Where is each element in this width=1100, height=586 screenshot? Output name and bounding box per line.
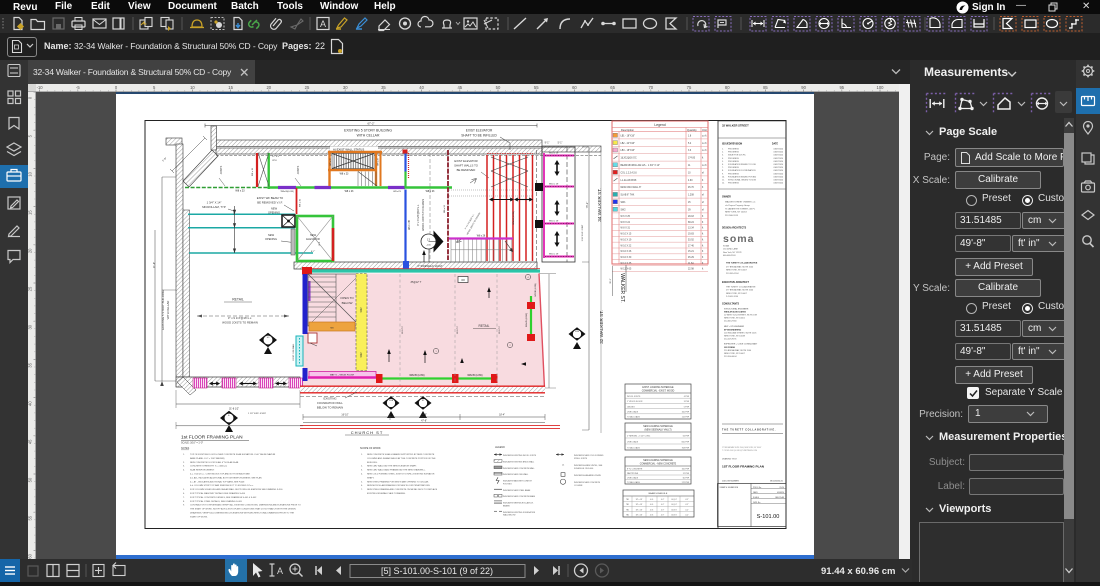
svg-text:EXECUTIVE ARCHITECT: EXECUTIVE ARCHITECT (722, 281, 749, 284)
svg-text:FOR TYPICAL MASONRY DETAILS SE: FOR TYPICAL MASONRY DETAILS SEE DRAWING … (190, 492, 246, 495)
svg-text:COL 1,2,3,4,5,6: COL 1,2,3,4,5,6 (621, 172, 638, 174)
svg-text:FOR COLUMN SCHEDULE AND SHEAR: FOR COLUMN SCHEDULE AND SHEAR WALL SECTI… (190, 488, 283, 491)
svg-text:L1: L1 (562, 465, 565, 467)
svg-text:NEW: NEW (271, 207, 278, 211)
svg-text:CPU: CPU (272, 160, 277, 162)
svg-text:COMMERCIAL - NEW CONCRETE: COMMERCIAL - NEW CONCRETE (640, 463, 677, 466)
svg-text:W8 x23: W8 x23 (393, 191, 401, 193)
svg-text:PROJ. No.: PROJ. No. (753, 487, 762, 489)
svg-text:SLAB REINFORCEMENT:: SLAB REINFORCEMENT: (190, 469, 215, 472)
svg-text:M01240534-S1: M01240534-S1 (770, 481, 783, 483)
svg-text:CEILING: CEILING (627, 406, 635, 408)
svg-text:TB1: TB1 (626, 515, 629, 517)
svg-text:MICROLLAM, TYP: MICROLLAM, TYP (202, 205, 226, 209)
svg-text:4 PSF: 4 PSF (684, 396, 690, 398)
svg-text:-5: -5 (76, 85, 80, 90)
svg-text:Quantity: Quantity (687, 128, 697, 132)
svg-text:277 BROADWAY, SUITE 1500: 277 BROADWAY, SUITE 1500 (726, 266, 754, 269)
svg-text:W 10 X 30: W 10 X 30 (621, 257, 632, 259)
svg-text:WOOD (LOW): WOOD (LOW) (535, 283, 537, 296)
svg-text:23-20: 23-20 (779, 487, 784, 489)
svg-text:soma: soma (723, 233, 754, 245)
svg-text:31'-8 1/2": 31'-8 1/2" (229, 408, 239, 411)
svg-text:NEW YORK, NY 10007: NEW YORK, NY 10007 (726, 270, 748, 272)
svg-text:FOR TYPICAL STEEL DETAILS, SEE: FOR TYPICAL STEEL DETAILS, SEE DRAWING S… (190, 500, 243, 503)
svg-text:45.70: 45.70 (688, 187, 694, 189)
svg-text:47'-8": 47'-8" (421, 421, 427, 423)
svg-text:EXISTING: EXISTING (323, 397, 336, 401)
svg-text:75'-2": 75'-2" (585, 202, 589, 209)
svg-text:600 PSF: 600 PSF (682, 442, 690, 444)
svg-text:30: 30 (28, 324, 33, 329)
svg-text:W8 x 31: W8 x 31 (444, 204, 446, 212)
svg-text:35: 35 (28, 362, 33, 367)
svg-text:12.: 12. (722, 183, 725, 185)
svg-text:NEW CMU WALL 8": NEW CMU WALL 8" (621, 186, 642, 189)
svg-text:SW1: SW1 (621, 202, 627, 204)
svg-text:2-2-965-1244: 2-2-965-1244 (726, 296, 739, 298)
svg-text:10.: 10. (722, 176, 725, 178)
svg-text:SOMA: SOMA (723, 245, 730, 248)
svg-text:SHAFT WALLS TO: SHAFT WALLS TO (454, 164, 479, 168)
svg-text:SCALE: SCALE (753, 496, 760, 499)
svg-text:4 #6: 4 #6 (650, 504, 653, 506)
svg-text:Description: Description (621, 128, 635, 132)
svg-text:150 42ND LANE: 150 42ND LANE (723, 248, 738, 251)
svg-text:53.92: 53.92 (688, 239, 694, 241)
svg-text:ISSUED/REVISION: ISSUED/REVISION (722, 144, 743, 146)
svg-text:W8 x 23: W8 x 23 (340, 173, 349, 176)
svg-text:03/07/2024: 03/07/2024 (774, 158, 783, 160)
svg-text:1&J/12@16 OC: 1&J/12@16 OC (621, 158, 637, 160)
svg-text:20: 20 (28, 248, 33, 253)
svg-text:2: 2 (509, 345, 510, 347)
svg-text:03/07/2024: 03/07/2024 (774, 161, 783, 163)
svg-text:112 PSF: 112 PSF (682, 417, 690, 419)
svg-text:03/07/2024: 03/07/2024 (774, 155, 783, 157)
svg-text:40: 40 (28, 401, 33, 406)
svg-text:JOISTS: JOISTS (297, 165, 300, 174)
svg-text:THE TURETT COLLABORATIVE: THE TURETT COLLABORATIVE (726, 262, 758, 265)
svg-text:LB2 - 24"X16": LB2 - 24"X16" (621, 143, 636, 145)
svg-text:6.: 6. (722, 164, 724, 166)
svg-text:OWNER: OWNER (722, 197, 731, 199)
svg-text:cu ft: cu ft (702, 134, 707, 137)
svg-text:cu ft: cu ft (702, 149, 707, 152)
svg-text:6.: 6. (361, 485, 363, 487)
svg-text:3" x 9 1/4"@16"o.c.: 3" x 9 1/4"@16"o.c. (228, 316, 252, 320)
svg-text:1st FLOOR FRAMING PLAN: 1st FLOOR FRAMING PLAN (181, 435, 243, 441)
svg-text:5.: 5. (722, 161, 724, 163)
svg-text:16'-10": 16'-10" (341, 415, 348, 417)
svg-text:1 1/2' EXP. JOINT: 1 1/2' EXP. JOINT (582, 224, 584, 241)
svg-text:MEP + FP ENGINEER: MEP + FP ENGINEER (724, 326, 745, 328)
svg-text:03/07/2024: 03/07/2024 (774, 176, 783, 178)
svg-text:W16X57: W16X57 (402, 325, 404, 334)
svg-text:4.: 4. (722, 158, 724, 160)
svg-text:#4 @ 6": #4 @ 6" (671, 504, 677, 506)
svg-text:EXIST. LOADING SCHEDULE: EXIST. LOADING SCHEDULE (642, 386, 674, 389)
svg-text:35: 35 (381, 85, 386, 90)
svg-text:INDICATES NEW MICROLLAM LVL: INDICATES NEW MICROLLAM LVL (503, 502, 533, 505)
svg-text:18" x 16": 18" x 16" (636, 504, 643, 506)
svg-text:SW2: SW2 (621, 209, 627, 211)
svg-text:20: 20 (266, 85, 271, 90)
svg-text:4 #6: 4 #6 (650, 509, 653, 511)
svg-text:L1-2Lx4X3X3/8: L1-2Lx4X3X3/8 (621, 180, 638, 182)
svg-text:A: A (320, 19, 326, 29)
svg-text:11.: 11. (722, 180, 725, 182)
svg-text:2.: 2. (183, 462, 185, 464)
svg-text:6.: 6. (183, 493, 185, 495)
svg-text:25: 25 (28, 286, 33, 291)
svg-text:EXIST ELEVATOR: EXIST ELEVATOR (466, 129, 493, 133)
svg-text:c/o Propco Property Group: c/o Propco Property Group (725, 204, 751, 207)
svg-text:WITH CELLAR: WITH CELLAR (166, 301, 170, 320)
svg-text:W10 x 19: W10 x 19 (549, 254, 559, 256)
svg-text:#4 @ 6": #4 @ 6" (671, 509, 677, 511)
svg-text:4'-2": 4'-2" (685, 509, 689, 511)
svg-text:LB1 - 18"X16": LB1 - 18"X16" (621, 135, 636, 137)
svg-text:LEGEND: LEGEND (495, 446, 505, 449)
svg-text:14'-8": 14'-8" (421, 415, 427, 417)
svg-text:W10 x 19: W10 x 19 (549, 221, 559, 223)
svg-text:4 #7: 4 #7 (661, 504, 664, 506)
svg-text:22.98: 22.98 (688, 269, 694, 271)
svg-text:DESIGN ARCHITECTS: DESIGN ARCHITECTS (722, 227, 747, 230)
svg-text:NEW YORK, NY 10007: NEW YORK, NY 10007 (724, 353, 746, 355)
svg-text:Legend: Legend (654, 123, 665, 127)
svg-text:WOOD JOISTS TO REMAIN: WOOD JOISTS TO REMAIN (422, 199, 425, 231)
svg-text:WALKER ST.: WALKER ST. (619, 273, 625, 303)
svg-text:1 3/4" X 14": 1 3/4" X 14" (207, 201, 222, 205)
svg-text:12" x 3": 12" x 3" (272, 156, 280, 158)
svg-text:3.: 3. (361, 470, 363, 472)
svg-text:THE TURETT COLLABORATIVE.: THE TURETT COLLABORATIVE. (722, 429, 776, 432)
svg-text:INDICATES NEW COLD FORMED: INDICATES NEW COLD FORMED (574, 454, 604, 457)
svg-text:INDICATES NEW CONCRETE BEAM: INDICATES NEW CONCRETE BEAM (503, 495, 535, 498)
svg-text:NEW LOADING SCHEDULE: NEW LOADING SCHEDULE (643, 425, 673, 428)
svg-text:PROGRESS: PROGRESS (728, 173, 739, 175)
svg-text:40: 40 (419, 85, 424, 90)
svg-text:212-643-7560: 212-643-7560 (724, 321, 737, 323)
svg-text:1,208: 1,208 (688, 195, 694, 197)
svg-text:4'-2": 4'-2" (685, 515, 689, 517)
svg-text:45: 45 (28, 439, 33, 444)
svg-text:cu ft: cu ft (702, 142, 707, 145)
svg-text:EXIST ELEVATOR: EXIST ELEVATOR (454, 159, 477, 163)
svg-text:1 1/2" EXP. JOINT: 1 1/2" EXP. JOINT (248, 413, 267, 415)
svg-text:A: A (277, 566, 283, 576)
svg-text:W8x35 (LOW): W8x35 (LOW) (526, 313, 528, 327)
svg-text:(NEW SIDEWALK VAULT): (NEW SIDEWALK VAULT) (644, 429, 671, 432)
svg-text:Unit: Unit (702, 128, 707, 132)
svg-text:9.: 9. (722, 173, 724, 175)
svg-text:OPENING: OPENING (268, 211, 280, 215)
svg-text:DRAWING TITLE: DRAWING TITLE (722, 458, 737, 461)
svg-text:W 8 X 31: W 8 X 31 (621, 228, 631, 230)
svg-text:4 #6: 4 #6 (650, 515, 653, 517)
svg-text:8" N. CONCRETE: 8" N. CONCRETE (627, 468, 643, 470)
svg-text:60 PSF: 60 PSF (683, 477, 690, 479)
svg-text:174.83: 174.83 (688, 158, 696, 160)
svg-text:32 WALKER ST.: 32 WALKER ST. (599, 310, 604, 344)
svg-text:INDICATES A NEW LINTEL, SEE: INDICATES A NEW LINTEL, SEE (574, 464, 603, 467)
svg-text:SHAFT TO BE INFILLED: SHAFT TO BE INFILLED (461, 134, 497, 138)
svg-text:4.a. #5@12"o.c. CONTINUOUS T: 4.a. #5@12"o.c. CONTINUOUS TOP AND BOTTO… (190, 473, 250, 476)
svg-text:PARTITIONS: PARTITIONS (627, 472, 639, 475)
svg-text:2.: 2. (722, 152, 724, 154)
svg-text:T. 212.965.1244 | E. INFO@TURE: T. 212.965.1244 | E. INFO@TURETTARCH.COM (722, 449, 758, 452)
svg-text:BUILDING.: BUILDING. (367, 462, 378, 464)
svg-text:5.: 5. (183, 489, 185, 491)
svg-text:TOTAL LOADS: TOTAL LOADS (627, 447, 641, 450)
svg-text:W8 x 23: W8 x 23 (330, 157, 332, 165)
svg-text:45.29: 45.29 (688, 257, 694, 259)
svg-text:DATE: DATE (772, 143, 779, 146)
svg-text:STRUCTURAL ENGINEER: STRUCTURAL ENGINEER (724, 308, 749, 311)
svg-text:220 BROADWAY, SUITE 1500: 220 BROADWAY, SUITE 1500 (724, 349, 752, 352)
svg-text:INDICATES NEW CONCRETE: INDICATES NEW CONCRETE (574, 481, 601, 484)
svg-text:WOOD JOISTS TO REMAIN: WOOD JOISTS TO REMAIN (222, 321, 258, 325)
svg-text:SW2: SW2 (361, 352, 363, 358)
svg-text:3.: 3. (722, 155, 724, 157)
svg-text:THE START OF WORK. NOTIFY AOR: THE START OF WORK. NOTIFY AOR & EOR OF A… (190, 508, 296, 511)
svg-text:18" x 16": 18" x 16" (636, 499, 643, 501)
svg-text:WOOD JOISTS: WOOD JOISTS (627, 396, 641, 398)
svg-text:DWF. No.: DWF. No. (753, 502, 761, 504)
svg-text:S-: S- (228, 415, 230, 417)
svg-text:INDICATES EXISTING FOUNDATION: INDICATES EXISTING FOUNDATION (503, 511, 536, 514)
svg-text:29.18: 29.18 (688, 216, 694, 218)
svg-text:1.: 1. (183, 454, 185, 456)
svg-text:30: 30 (343, 85, 348, 90)
svg-text:EXPEDITER + CODE CONSULTANT: EXPEDITER + CODE CONSULTANT (724, 343, 758, 346)
svg-text:4.d. COLUMN STRIP TOP BAR SP: 4.d. COLUMN STRIP TOP BAR SPACING NOT TO… (190, 484, 254, 487)
svg-text:TB1: TB1 (626, 504, 629, 506)
svg-text:100 PSF: 100 PSF (682, 412, 690, 414)
svg-text:50: 50 (28, 477, 33, 482)
svg-text:03/07/2024: 03/07/2024 (774, 152, 783, 154)
svg-text:1: 1 (435, 351, 436, 353)
svg-text:WEXLER ASSOCIATES: WEXLER ASSOCIATES (724, 311, 747, 314)
svg-text:CONTRACTOR TO REVIEW AND VERIF: CONTRACTOR TO REVIEW AND VERIFY ALL EXIS… (190, 504, 301, 507)
svg-text:CONCRETE STRENGTH: f'c = 4000: CONCRETE STRENGTH: f'c = 4000 psi (190, 466, 228, 468)
svg-text:4.c. AT - INDICATES ADDITION: 4.c. AT - INDICATES ADDITIONAL TOP BARS,… (190, 480, 245, 483)
svg-text:212-965-1244: 212-965-1244 (726, 273, 739, 275)
svg-text:WITH CELLAR: WITH CELLAR (357, 134, 380, 138)
svg-text:FOUNDATION WILL: FOUNDATION WILL (317, 401, 343, 405)
svg-text:12 PSF: 12 PSF (683, 473, 690, 475)
svg-text:56 PSF: 56 PSF (683, 436, 690, 438)
svg-text:NEW CMU WALLS AND FRAMING AT T: NEW CMU WALLS AND FRAMING AT THE NEW STA… (367, 469, 426, 472)
svg-text:NEW YORK, NY 10038: NEW YORK, NY 10038 (724, 335, 746, 337)
svg-text:[5] S-101.00-S-101 (9 of 22): [5] S-101.00-S-101 (9 of 22) (381, 566, 493, 576)
svg-text:70: 70 (648, 85, 653, 90)
svg-text:277 BROADWAY, SUITE 1500: 277 BROADWAY, SUITE 1500 (726, 289, 754, 292)
svg-text:4 #6: 4 #6 (650, 499, 653, 501)
svg-text:FOOTING: FOOTING (503, 483, 512, 485)
svg-text:W10 x 45: W10 x 45 (409, 219, 411, 229)
svg-text:7.: 7. (722, 167, 724, 169)
svg-text:LIVE LOADS: LIVE LOADS (627, 441, 639, 444)
svg-text:PROGRESS: PROGRESS (728, 152, 739, 154)
svg-text:03/07/2024: 03/07/2024 (774, 183, 783, 185)
svg-text:9'-1": 9'-1" (545, 142, 550, 145)
svg-text:32 WALKER STREET: 32 WALKER STREET (722, 124, 749, 128)
svg-text:18" x 16": 18" x 16" (636, 515, 643, 517)
svg-text:FOUNDATION ISSUED TO DOB: FOUNDATION ISSUED TO DOB (728, 163, 756, 166)
svg-text:03/07/2024: 03/07/2024 (774, 170, 783, 172)
svg-text:TB1: TB1 (626, 499, 629, 501)
svg-text:EXISTING 5 STORY BUILDING: EXISTING 5 STORY BUILDING (344, 129, 392, 133)
svg-text:10: 10 (28, 171, 33, 176)
svg-text:4.: 4. (183, 470, 185, 472)
svg-text:W8 x 23: W8 x 23 (378, 157, 380, 165)
svg-text:COMMERCIAL - EXIST. WOOD: COMMERCIAL - EXIST. WOOD (642, 390, 675, 393)
svg-text:18'-4": 18'-4" (499, 415, 505, 417)
svg-text:7.: 7. (361, 489, 363, 491)
svg-text:SHAFT.: SHAFT. (367, 476, 375, 479)
svg-text:EXIST WF BEAM TO: EXIST WF BEAM TO (257, 196, 284, 200)
svg-text:MATT 1 - W8x35 FLUSH: MATT 1 - W8x35 FLUSH (330, 374, 355, 377)
svg-text:COLUMN: COLUMN (574, 485, 583, 487)
svg-text:8'-7": 8'-7" (311, 251, 316, 253)
svg-text:5 PSF: 5 PSF (684, 406, 690, 408)
svg-text:BE REMOVED V.I.F.: BE REMOVED V.I.F. (257, 201, 283, 205)
svg-text:1ST FLOOR FRAMING PLAN: 1ST FLOOR FRAMING PLAN (722, 465, 765, 469)
svg-text:PROGRESS: PROGRESS (728, 161, 739, 163)
svg-text:13.34: 13.34 (688, 228, 694, 230)
svg-text:S-101.00: S-101.00 (757, 514, 780, 520)
svg-text:FOR TYPICAL CONCRETE DETAILS,: FOR TYPICAL CONCRETE DETAILS, SEE DRAWIN… (190, 496, 257, 499)
svg-text:CHURCH ST: CHURCH ST (351, 430, 384, 435)
svg-text:SEE PLAN: SEE PLAN (775, 496, 784, 499)
svg-text:1.: 1. (722, 149, 724, 151)
svg-text:W8 x 23: W8 x 23 (426, 190, 435, 193)
svg-text:BEAMS: BEAMS (503, 504, 510, 507)
svg-text:W8 x 23: W8 x 23 (235, 190, 245, 193)
svg-text:#5@12" T: #5@12" T (411, 281, 422, 284)
svg-text:-200: -200 (426, 245, 431, 247)
svg-text:10'-4: 10'-4 (319, 241, 321, 246)
svg-text:55: 55 (28, 515, 33, 520)
svg-text:PROGRESS: PROGRESS (728, 149, 739, 151)
svg-text:2" NEW MD + 3 1/2" CONC: 2" NEW MD + 3 1/2" CONC (627, 436, 651, 438)
svg-text:30'-2": 30'-2" (610, 278, 612, 284)
svg-text:75: 75 (687, 85, 692, 90)
svg-text:7.: 7. (183, 497, 185, 499)
svg-text:LIVE LOADS: LIVE LOADS (627, 411, 639, 414)
svg-text:68.24: 68.24 (688, 222, 694, 224)
svg-text:W 12 X 35: W 12 X 35 (621, 263, 632, 265)
svg-text:#4 @ 6": #4 @ 6" (671, 515, 677, 517)
svg-text:NEW LOADING SCHEDULE: NEW LOADING SCHEDULE (643, 459, 673, 462)
svg-text:85: 85 (763, 85, 768, 90)
svg-text:NEW YORK, NY 10013: NEW YORK, NY 10013 (725, 212, 747, 214)
svg-text:EP ENGINEERING: EP ENGINEERING (724, 329, 742, 331)
svg-text:3 PSF: 3 PSF (684, 401, 690, 403)
svg-text:INDICATES NEW STEEL BEAM: INDICATES NEW STEEL BEAM (503, 489, 531, 492)
svg-text:4'-2": 4'-2" (685, 499, 689, 501)
svg-text:91.44 x 60.96 cm: 91.44 x 60.96 cm (821, 566, 895, 577)
svg-text:4 #7: 4 #7 (661, 515, 664, 517)
svg-text:INDICATES EXISTING BRICK WALL: INDICATES EXISTING BRICK WALL (503, 460, 534, 463)
svg-text:NEW CMU WALLS AT THE NEW ELEVA: NEW CMU WALLS AT THE NEW ELEVATOR SHAFT. (367, 465, 417, 468)
svg-text:SCOPE OF WORK:: SCOPE OF WORK: (360, 447, 381, 450)
svg-text:100: 100 (877, 85, 885, 90)
svg-text:W16X57: W16X57 (499, 325, 501, 334)
svg-text:FOUNDATION COORDINATION: FOUNDATION COORDINATION (728, 169, 756, 172)
svg-text:NEW YORK, NY 10001: NEW YORK, NY 10001 (724, 318, 746, 320)
svg-text:W8x35 (LOW): W8x35 (LOW) (467, 374, 482, 377)
svg-text:4'-2": 4'-2" (685, 504, 689, 506)
svg-text:2.: 2. (361, 466, 363, 468)
svg-text:708 PSF: 708 PSF (682, 448, 690, 450)
svg-text:W 10 X 15: W 10 X 15 (621, 234, 632, 236)
svg-text:1.: 1. (361, 454, 363, 456)
svg-text:3" x 9 1/4"@16"o.c.: 3" x 9 1/4"@16"o.c. (417, 204, 420, 226)
svg-text:ft: ft (702, 268, 704, 271)
svg-text:03/07/2024: 03/07/2024 (774, 180, 783, 182)
svg-text:6" SIDEWALK VAULT: 6" SIDEWALK VAULT (417, 264, 443, 268)
svg-text:60: 60 (28, 553, 33, 558)
svg-text:17.46: 17.46 (688, 245, 694, 247)
svg-text:5'-8": 5'-8" (162, 157, 168, 163)
svg-text:4 #7: 4 #7 (661, 509, 664, 511)
svg-text:9.: 9. (183, 505, 185, 507)
svg-text:JOISTS: JOISTS (220, 165, 223, 174)
svg-text:S2B: S2B (575, 331, 580, 333)
svg-text:03/07/2024: 03/07/2024 (774, 173, 783, 175)
svg-text:EXISTING 5 STORY BUILDING: EXISTING 5 STORY BUILDING (161, 290, 165, 330)
svg-text:90: 90 (801, 85, 806, 90)
svg-text:NEW CONCRETE FLOOR SLAB: 6"TH: NEW CONCRETE FLOOR SLAB: 6"TH SLAB SLAB (190, 461, 239, 464)
svg-text:W8 x 15: W8 x 15 (252, 167, 254, 176)
svg-text:55: 55 (534, 85, 539, 90)
svg-text:18" x 16": 18" x 16" (636, 509, 643, 511)
svg-text:646-468-2903: 646-468-2903 (723, 255, 736, 257)
svg-text:cu ft: cu ft (702, 164, 707, 167)
svg-text:EXIST. 12IN WALL: EXIST. 12IN WALL (292, 343, 295, 361)
svg-text:NEW: NEW (310, 233, 317, 237)
svg-text:1" WOOD FLOOR: 1" WOOD FLOOR (627, 401, 643, 403)
svg-text:INDICATES MASONRY DONE BY: INDICATES MASONRY DONE BY (503, 480, 533, 483)
svg-text:W 10 X 26: W 10 X 26 (621, 251, 632, 253)
svg-text:8.: 8. (183, 501, 185, 503)
svg-text:212-229-9191: 212-229-9191 (724, 338, 737, 340)
svg-text:NEW CONCRETE SLAB & BEAMS SUPP: NEW CONCRETE SLAB & BEAMS SUPPORTED BY N… (367, 453, 435, 456)
svg-text:MB: MB (330, 328, 334, 330)
svg-text:CONSULTANTS: CONSULTANTS (722, 303, 739, 306)
svg-text:SCALE: 3/16" = 1'-0": SCALE: 3/16" = 1'-0" (181, 442, 203, 445)
svg-text:BEAM MICROLLAM LVL - 1 3/4" X: BEAM MICROLLAM LVL - 1 3/4" X 14" (621, 164, 661, 167)
svg-text:4.b. AB - INDICATES ADDITION: 4.b. AB - INDICATES ADDITIONAL BOTTOM RE… (190, 476, 262, 479)
svg-text:34 WALKER ST.: 34 WALKER ST. (597, 188, 602, 222)
svg-text:SW2: SW2 (361, 307, 363, 313)
svg-text:W8x35 (LOW): W8x35 (LOW) (409, 374, 424, 377)
svg-text:65: 65 (610, 85, 615, 90)
svg-text:#4 @ 6": #4 @ 6" (671, 499, 677, 501)
svg-text:TB1: TB1 (626, 509, 629, 511)
svg-text:TOTAL LOADS: TOTAL LOADS (627, 416, 641, 419)
svg-text:11.64: 11.64 (688, 263, 694, 265)
svg-text:ISSUE FOR 50% FIL: ISSUE FOR 50% FIL (728, 155, 746, 157)
svg-text:45: 45 (457, 85, 462, 90)
svg-text:8.: 8. (722, 170, 724, 172)
svg-text:LIVE LOADS: LIVE LOADS (627, 476, 639, 479)
svg-text:W 6 X 25: W 6 X 25 (621, 216, 631, 218)
